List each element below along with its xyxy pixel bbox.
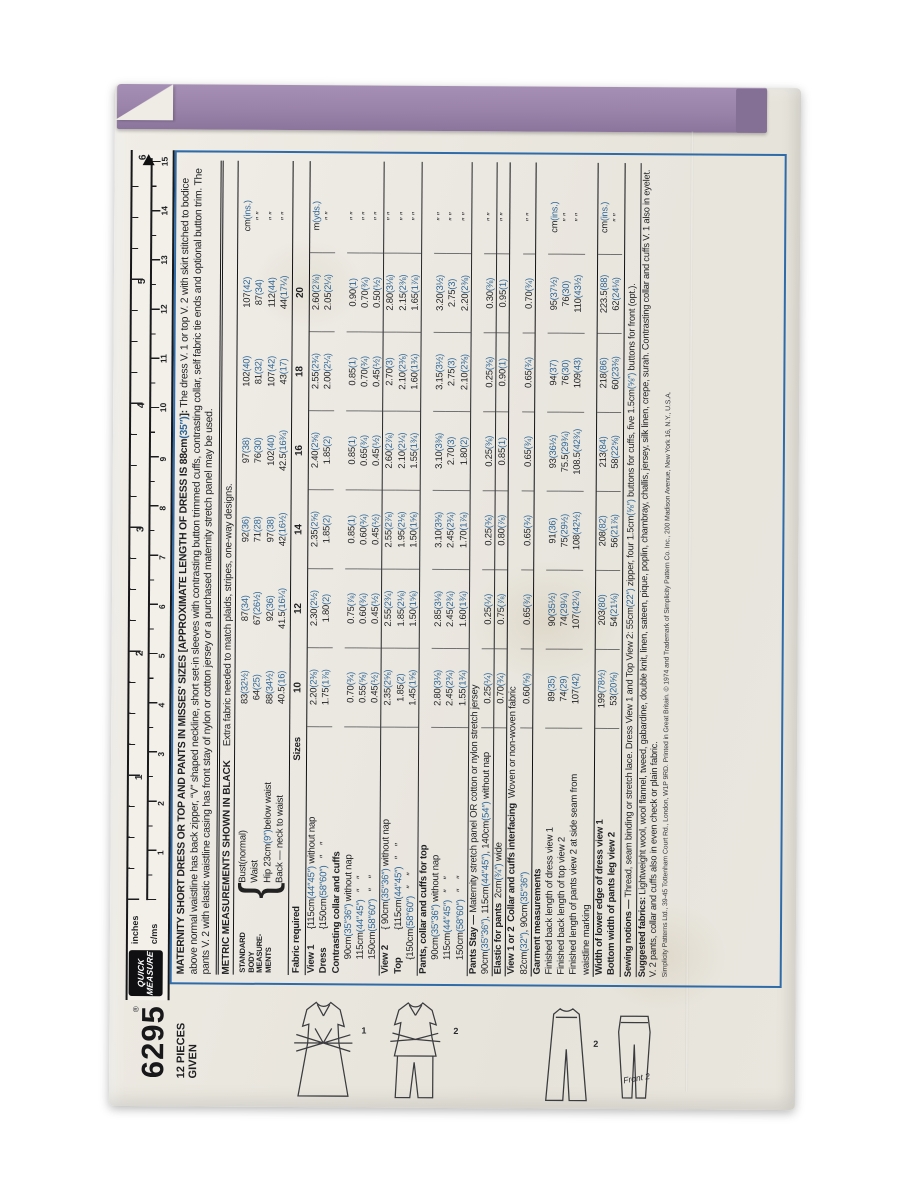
size-value-cell: 3.20(3½) xyxy=(434,254,447,333)
unit-cell: ″ ″ xyxy=(484,180,497,254)
size-value-cell: 2.55(2⅞) xyxy=(383,491,396,570)
cm-number: 6 xyxy=(157,604,167,609)
size-value-cell: 218(86) xyxy=(597,334,610,413)
size-column-header: 12 xyxy=(293,569,306,648)
size-value-cell: 89(35) xyxy=(545,650,558,729)
size-value-cell: 88(34½) xyxy=(263,648,276,727)
size-value-cell: 1.80(2) xyxy=(320,569,333,648)
envelope-sidebar: 6295 12 PIECES GIVEN xyxy=(135,982,200,1078)
size-value-cell: 107(42) xyxy=(265,332,278,411)
row-label: Elastic for pants 2cm(¾″) wide xyxy=(493,728,507,976)
size-value-cell: 60(23⅜) xyxy=(609,334,622,413)
size-value-cell: 43(17) xyxy=(277,332,290,411)
size-value-cell: 0.70(¾) xyxy=(359,253,372,332)
size-value-cell: 2.75(3) xyxy=(446,254,459,333)
pattern-envelope: ® QUICK MEASURE inches c/ms 123456123456… xyxy=(0,0,900,1203)
metric-note: METRIC MEASUREMENTS SHOWN IN BLACK xyxy=(220,760,232,974)
cm-number: 3 xyxy=(156,752,166,757)
size-value-cell: 40.5(16) xyxy=(275,648,288,727)
cm-number: 1 xyxy=(155,850,165,855)
size-value-cell: 1.55(1¾) xyxy=(456,649,469,728)
row-label: 150cm(58″60″) ″ ″ xyxy=(367,728,381,976)
size-value-cell: 42.5(16¾) xyxy=(276,411,289,490)
unit-cell: ″ ″ xyxy=(560,181,573,255)
size-value-cell: 0.75(⅞) xyxy=(495,570,508,649)
size-value-cell: 1.85(2⅛) xyxy=(394,570,407,649)
size-value-cell: 67(26½) xyxy=(251,569,264,648)
size-value-cell: 102(40) xyxy=(264,411,277,490)
row-label: 150cm(58″60″) ″ ″ xyxy=(454,728,468,976)
size-value-cell: 2.45(2¾) xyxy=(445,491,458,570)
inch-number: 1 xyxy=(134,775,145,781)
row-label: Back — neck to waist xyxy=(273,727,287,975)
size-value-cell: 92(36) xyxy=(239,490,252,569)
pattern-number: 6295 xyxy=(135,982,172,1078)
size-value-cell: 2.70(3) xyxy=(383,333,396,412)
unit-cell: ″ ″ xyxy=(446,180,459,254)
size-value-cell: 2.80(3⅛) xyxy=(431,649,444,728)
size-value-cell: 0.50(½) xyxy=(371,254,384,333)
size-value-cell: 2.60(2⅞) xyxy=(310,253,323,332)
cm-number: 4 xyxy=(156,703,166,708)
cm-number: 8 xyxy=(158,506,168,511)
size-value-cell: 76(30) xyxy=(559,334,572,413)
size-value-cell: 0.25(⅜) xyxy=(482,491,495,570)
size-value-cell: 107(42) xyxy=(241,253,254,332)
size-value-cell: 1.95(2⅛) xyxy=(395,491,408,570)
ruler-unit-cms: c/ms xyxy=(149,924,159,945)
photo-background: ® QUICK MEASURE inches c/ms 123456123456… xyxy=(0,0,900,1200)
size-value-cell: 1.85(2) xyxy=(321,411,334,490)
size-value-cell: 2.45(2¾) xyxy=(444,570,457,649)
size-value-cell: 2.70(3) xyxy=(445,412,458,491)
unit-cell: ″ ″ xyxy=(384,180,397,254)
size-value-cell: 58(22⅝) xyxy=(609,413,622,492)
size-value-cell: 0.70(¾) xyxy=(358,332,371,411)
size-value-cell: 81(32) xyxy=(252,332,265,411)
ruler-scales: 123456123456789101112131415 xyxy=(128,158,173,900)
size-value-cell: 44(17¼) xyxy=(277,253,290,332)
size-value-cell: 3.10(3⅜) xyxy=(432,491,445,570)
unit-cell: ″ ″ xyxy=(397,180,410,254)
size-value-cell: 0.95(1) xyxy=(497,254,510,333)
unit-cell: ″ ″ xyxy=(434,180,447,254)
size-value-cell: 2.55(2¾) xyxy=(309,332,322,411)
size-value-cell: 1.85(2) xyxy=(321,490,334,569)
size-value-cell: 2.80(3⅛) xyxy=(384,254,397,333)
cm-number: 12 xyxy=(159,304,169,314)
unit-cell: ″ ″ xyxy=(610,181,623,255)
size-value-cell: 83(32½) xyxy=(238,648,251,727)
size-value-cell: 2.05(2¼) xyxy=(322,253,335,332)
unit-cell: ″ ″ xyxy=(459,180,472,254)
unit-cell: ″ ″ xyxy=(523,180,536,254)
size-value-cell: 0.70(¾) xyxy=(494,649,507,728)
standard-body-measurements-table: STANDARDBODYMEASURE-MENTS { Bust(normal)… xyxy=(235,161,293,975)
unit-cell: ″ ″ xyxy=(371,180,384,254)
size-value-cell: 1.75(1⅞) xyxy=(320,648,333,727)
inch-number: 5 xyxy=(137,279,148,285)
row-label: {150cm(58″60″) ″ ″ xyxy=(404,728,418,976)
unit-cell: ″ ″ xyxy=(359,179,372,253)
size-value-cell: 0.65(¾) xyxy=(358,411,371,490)
size-value-cell: 42(16½) xyxy=(276,490,289,569)
size-value-cell: 108(42½) xyxy=(571,492,584,571)
size-value-cell: 0.65(¾) xyxy=(521,491,534,570)
size-value-cell: 2.40(2⅝) xyxy=(309,411,322,490)
size-value-cell: 1.50(1⅝) xyxy=(407,491,420,570)
size-value-cell: 0.25(¼) xyxy=(481,649,494,728)
size-value-cell: 2.00(2¼) xyxy=(321,332,334,411)
inch-number: 2 xyxy=(135,651,146,657)
size-value-cell: 0.45(½) xyxy=(370,333,383,412)
size-value-cell: 71(28) xyxy=(251,490,264,569)
size-value-cell: 75(29½) xyxy=(558,492,571,571)
unit-cell: cm(ins.) xyxy=(241,179,254,253)
size-value-cell: 76(30) xyxy=(560,255,573,334)
unit-cell: ″ ″ xyxy=(497,180,510,254)
size-value-cell: 74(29) xyxy=(557,650,570,729)
size-value-cell: 0.55(⅝) xyxy=(356,648,369,727)
size-value-cell: 107(42¼) xyxy=(570,571,583,650)
row-label: 90cm(35″36″), 115cm(44″45″), 140cm(54″) … xyxy=(480,728,494,976)
unit-cell: ″ ″ xyxy=(322,179,335,253)
size-value-cell: 2.20(2⅜) xyxy=(307,648,320,727)
size-value-cell: 1.60(1¾) xyxy=(408,333,421,412)
size-value-cell: 199(78½) xyxy=(595,650,608,729)
size-value-cell: 2.10(2¼) xyxy=(395,412,408,491)
size-value-cell: 3.15(3½) xyxy=(433,333,446,412)
cm-number: 7 xyxy=(157,555,167,560)
size-value-cell: 2.45(2¾) xyxy=(444,649,457,728)
size-value-cell: 2.35(2⅝) xyxy=(308,490,321,569)
size-value-cell: 2.60(2⅞) xyxy=(383,412,396,491)
size-value-cell: 0.60(¾) xyxy=(357,569,370,648)
size-value-cell: 2.15(2⅜) xyxy=(396,254,409,333)
fabric-required-table: View 1{115cm(44″45″) without nap2.20(2⅜)… xyxy=(306,161,623,977)
size-value-cell: 76(30) xyxy=(252,411,265,490)
size-value-cell: 0.70(¾) xyxy=(522,254,535,333)
size-column-header: 20 xyxy=(295,253,308,332)
unit-cell: cm(ins.) xyxy=(598,181,611,255)
size-column-header: 16 xyxy=(294,411,307,490)
paper-fold-corner xyxy=(115,84,173,120)
size-value-cell: 75.5(29¾) xyxy=(559,413,572,492)
size-value-cell: 0.45(½) xyxy=(369,570,382,649)
size-value-cell: 109(43) xyxy=(572,334,585,413)
cm-number: 5 xyxy=(157,653,167,658)
pieces-given-label: 12 PIECES GIVEN xyxy=(175,982,200,1078)
size-value-cell: 87(34) xyxy=(253,253,266,332)
size-value-cell: 0.85(1) xyxy=(345,411,358,490)
size-value-cell: 0.45(½) xyxy=(370,412,383,491)
size-value-cell: 74(29¼) xyxy=(558,571,571,650)
unit-cell: ″ ″ xyxy=(253,179,266,253)
size-value-cell: 0.65(¾) xyxy=(521,412,534,491)
size-value-cell: 0.45(½) xyxy=(368,649,381,728)
size-value-cell: 0.25(¼) xyxy=(482,570,495,649)
size-value-cell: 53(20⅝) xyxy=(607,650,620,729)
size-value-cell: 95(37½) xyxy=(548,255,561,334)
size-value-cell: 1.85(2) xyxy=(394,649,407,728)
size-value-cell: 0.75(⅞) xyxy=(344,569,357,648)
size-value-cell: 0.45(½) xyxy=(369,491,382,570)
cm-number: 15 xyxy=(160,157,170,167)
size-value-cell: 102(40) xyxy=(240,332,253,411)
extra-fabric-note: Extra fabric needed to match plaids, str… xyxy=(222,483,235,746)
size-value-cell: 41.5(16¼) xyxy=(275,569,288,648)
cm-number: 13 xyxy=(159,255,169,265)
size-value-cell: 93(36½) xyxy=(547,413,560,492)
size-value-cell: 0.90(1) xyxy=(496,333,509,412)
size-value-cell: 2.35(2⅝) xyxy=(382,649,395,728)
ruler-unit-inches: inches xyxy=(130,916,140,945)
row-label: 82cm(32″), 90cm(35″36″) xyxy=(518,728,532,976)
envelope-flap xyxy=(117,84,767,133)
size-value-cell: 94(37) xyxy=(547,334,560,413)
unit-cell: m(yds.) xyxy=(310,179,323,253)
size-value-cell: 1.60(1¾) xyxy=(456,570,469,649)
size-value-cell: 0.65(¾) xyxy=(522,333,535,412)
cm-number: 11 xyxy=(158,354,168,363)
size-value-cell: 1.65(1⅞) xyxy=(408,254,421,333)
description-paragraph: MATERNITY SHORT DRESS OR TOP AND PANTS I… xyxy=(176,160,219,974)
size-value-cell: 2.30(2½) xyxy=(308,569,321,648)
size-value-cell: 1.50(1⅝) xyxy=(406,570,419,649)
inch-number: 6 xyxy=(138,155,149,161)
cm-number: 2 xyxy=(156,801,166,806)
cm-number: 14 xyxy=(159,206,169,216)
size-value-cell: 2.75(3) xyxy=(446,333,459,412)
size-value-cell: 0.25(⅜) xyxy=(483,333,496,412)
size-value-cell: 87(34) xyxy=(239,569,252,648)
envelope-flap-end xyxy=(736,89,767,133)
size-value-cell: 0.85(1) xyxy=(496,412,509,491)
size-value-cell: 2.85(3⅛) xyxy=(432,570,445,649)
size-value-cell: 208(82) xyxy=(596,492,609,571)
size-value-cell: 0.85(1) xyxy=(345,490,358,569)
size-value-cell: 0.70(¾) xyxy=(344,648,357,727)
printed-content-rotated: ® QUICK MEASURE inches c/ms 123456123456… xyxy=(125,148,793,1108)
size-value-cell: 110(43½) xyxy=(572,255,585,334)
row-label: Bottom width of pants leg view 2 xyxy=(606,729,620,977)
brace-glyph: { xyxy=(228,882,286,899)
size-value-cell: 90(35½) xyxy=(546,571,559,650)
size-value-cell: 97(38) xyxy=(240,411,253,490)
size-value-cell: 0.60(⅝) xyxy=(520,649,533,728)
size-value-cell: 107(42) xyxy=(570,650,583,729)
size-column-header: 14 xyxy=(293,490,306,569)
standard-body-label: STANDARDBODYMEASURE-MENTS xyxy=(239,932,274,973)
notes-line: Suggested fabrics: Lightweight wool, woo… xyxy=(635,163,664,977)
size-value-cell: 2.10(2⅜) xyxy=(396,333,409,412)
size-value-cell: 1.80(2) xyxy=(457,412,470,491)
size-value-cell: 223.5(88) xyxy=(597,255,610,334)
size-value-cell: 0.85(1) xyxy=(346,332,359,411)
size-value-cell: 3.10(3⅜) xyxy=(433,412,446,491)
size-value-cell: 0.60(¾) xyxy=(357,490,370,569)
size-value-cell: 1.70(1⅞) xyxy=(457,491,470,570)
copyright-line: Simplicity Patterns Ltd., 39-45 Tottenha… xyxy=(662,163,674,977)
inch-number: 3 xyxy=(135,527,146,533)
notions-and-fabrics: Sewing notions — Thread, seam binding or… xyxy=(620,163,664,977)
unit-cell: cm(ins.) xyxy=(548,181,561,255)
size-value-cell: 0.25(⅜) xyxy=(483,412,496,491)
fabric-required-label: Fabric requiredSizes xyxy=(291,727,305,975)
unit-cell: ″ ″ xyxy=(266,179,279,253)
size-value-cell: 112(44) xyxy=(265,253,278,332)
unit-cell: ″ ″ xyxy=(347,179,360,253)
size-column-header: 18 xyxy=(294,332,307,411)
size-value-cell: 2.20(2⅜) xyxy=(458,254,471,333)
size-value-cell: 2.55(2¾) xyxy=(382,570,395,649)
size-value-cell: 92(36) xyxy=(263,569,276,648)
size-value-cell: 0.30(⅜) xyxy=(484,254,497,333)
size-value-cell: 0.65(¾) xyxy=(520,570,533,649)
unit-cell: ″ ″ xyxy=(409,180,422,254)
quick-measure-ruler: ® QUICK MEASURE inches c/ms 123456123456… xyxy=(126,150,175,1000)
size-value-cell: 56(21⅞) xyxy=(608,492,621,571)
cm-number: 9 xyxy=(158,457,168,462)
size-value-cell: 97(38) xyxy=(264,490,277,569)
size-value-cell: 54(21⅛) xyxy=(608,571,621,650)
size-value-cell: 1.55(1¾) xyxy=(407,412,420,491)
unit-cell: ″ ″ xyxy=(278,179,291,253)
size-value-cell: 108.5(42¾) xyxy=(571,413,584,492)
size-value-cell: 2.10(2⅜) xyxy=(458,333,471,412)
measurements-panel: MATERNITY SHORT DRESS OR TOP AND PANTS I… xyxy=(170,150,787,988)
size-column-header: 10 xyxy=(292,648,305,727)
inch-number: 4 xyxy=(136,403,147,409)
size-value-cell: 64(25) xyxy=(251,648,264,727)
size-value-cell: 213(84) xyxy=(596,413,609,492)
cm-number: 10 xyxy=(158,403,168,413)
size-value-cell: 1.45(1⅝) xyxy=(406,649,419,728)
size-value-cell: 62(24⅛) xyxy=(610,255,623,334)
size-value-cell: 91(36) xyxy=(546,492,559,571)
size-value-cell: 0.90(1) xyxy=(346,253,359,332)
unit-cell: ″ ″ xyxy=(573,181,586,255)
size-value-cell: 0.80(⅞) xyxy=(495,491,508,570)
size-value-cell: 203(80) xyxy=(595,571,608,650)
